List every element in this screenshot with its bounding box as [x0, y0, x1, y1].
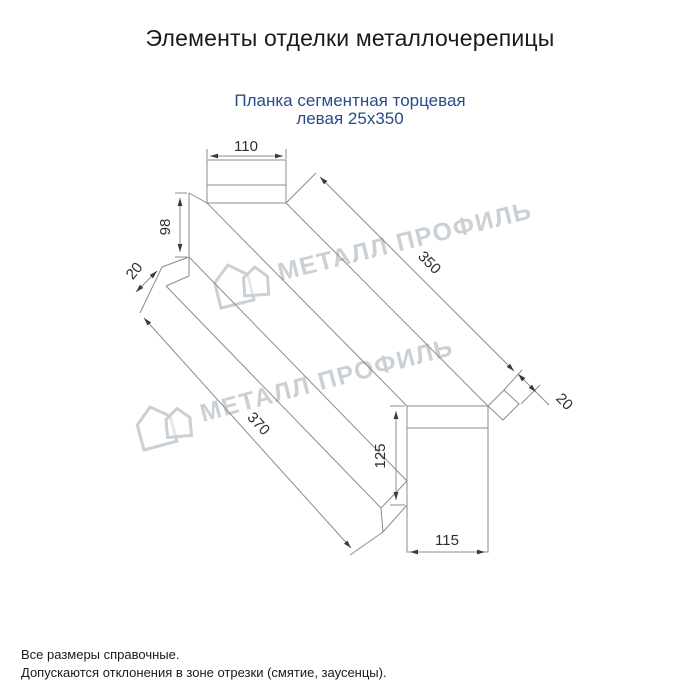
metall-profil-logo-icon — [134, 397, 197, 450]
dimension-top-width: 110 — [207, 138, 286, 159]
dimension-right-flange: 20 — [518, 374, 576, 414]
technical-drawing: МЕТАЛЛ ПРОФИЛЬ МЕТАЛЛ ПРОФИЛЬ — [0, 0, 700, 700]
dimension-left-flange: 20 — [123, 259, 162, 313]
dim-right-flange-label: 20 — [552, 390, 576, 414]
dimension-end-width: 115 — [410, 532, 485, 552]
metall-profil-logo-icon — [211, 256, 274, 308]
dim-left-height-label: 98 — [157, 219, 174, 236]
footnote-line2: Допускаются отклонения в зоне отрезки (с… — [21, 664, 621, 682]
dim-end-width-label: 115 — [435, 532, 459, 549]
watermark-lower: МЕТАЛЛ ПРОФИЛЬ — [134, 327, 458, 450]
dim-end-height-label: 125 — [372, 443, 389, 468]
dim-top-width-label: 110 — [234, 138, 258, 155]
dimension-left-height: 98 — [157, 193, 187, 257]
dimension-end-height: 125 — [372, 406, 405, 505]
watermark-upper: МЕТАЛЛ ПРОФИЛЬ — [211, 191, 536, 308]
watermark-text: МЕТАЛЛ ПРОФИЛЬ — [197, 333, 457, 428]
footnote-line1: Все размеры справочные. — [21, 646, 621, 664]
footnotes: Все размеры справочные. Допускаются откл… — [21, 646, 621, 682]
top-end-face — [207, 160, 286, 203]
right-flange — [488, 390, 519, 420]
watermark-text: МЕТАЛЛ ПРОФИЛЬ — [275, 196, 535, 286]
dim-left-flange-label: 20 — [123, 259, 147, 283]
